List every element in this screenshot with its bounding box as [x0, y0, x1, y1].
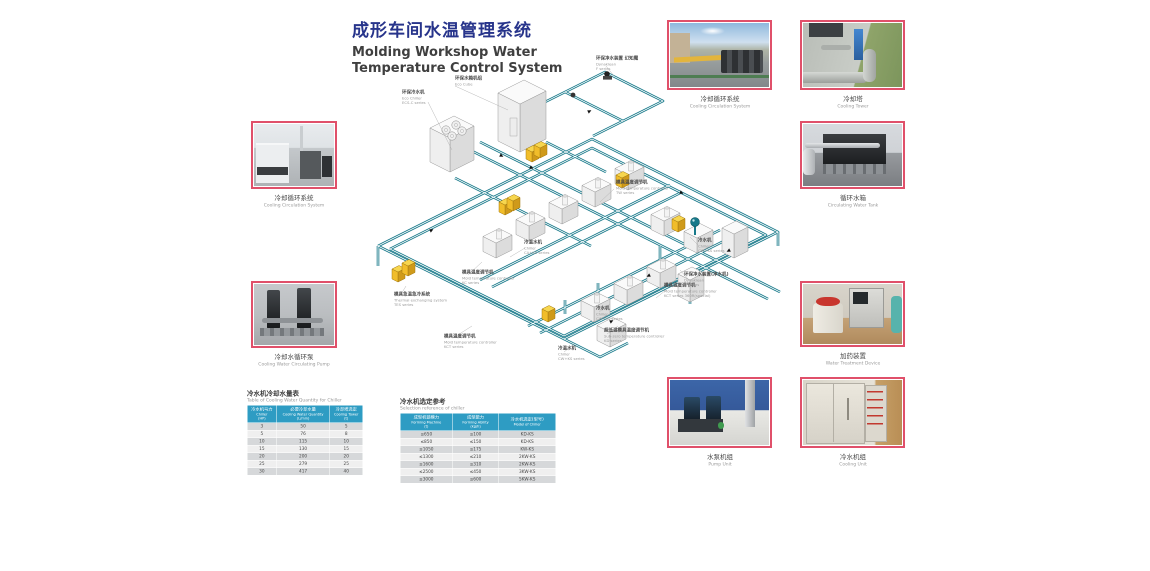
- diagram-label-chiller-cw-center: 冷水机 Chiller CW+KS series: [596, 306, 671, 322]
- table-row: ≤1300≤2102KW-KS: [400, 453, 556, 461]
- photo-image: [803, 284, 902, 344]
- photo-detail: [813, 303, 843, 333]
- photo-cooling-unit: 冷水机组 Cooling Unit: [800, 377, 905, 482]
- diagram-label-chiller-cw-right: 冷水机 Chiller CW+KS series: [698, 238, 773, 254]
- diagram-label-dynaklean-d: 环保净水装置(净水机) Dynaklean D series: [684, 272, 759, 288]
- diagram-label-controller-kct: 模具温度调节机 Mold temperature controller KCT …: [444, 334, 519, 350]
- photo-detail: [823, 134, 886, 164]
- photo-detail: [678, 419, 724, 432]
- table-row: 3505: [247, 423, 363, 431]
- photo-detail: [300, 126, 302, 151]
- photo-detail: [300, 151, 321, 178]
- photo-circulating-water-tank: 循环水箱 Circulating Water Tank: [800, 121, 905, 223]
- table-row: 2020020: [247, 453, 363, 461]
- diagram-label-eco-cube: 环保水箱机组 Eco Cube: [455, 76, 530, 87]
- photo-frame: [800, 377, 905, 448]
- table-row: ≤650≤100KD-KS: [400, 431, 556, 439]
- photo-detail: [260, 328, 324, 337]
- photo-detail: [262, 318, 323, 323]
- photo-detail: [257, 167, 287, 174]
- photo-detail: [803, 72, 868, 84]
- photo-detail: [847, 398, 849, 420]
- table-row: 3041740: [247, 468, 363, 476]
- table-col-header: 成型机锁模力Forming Machine(t): [400, 413, 452, 431]
- photo-image: [803, 23, 902, 87]
- cooling-water-table: 冷水机马力Chiller(HP)必要冷却水量Cooling Water Quan…: [247, 405, 363, 476]
- photo-image: [254, 284, 334, 345]
- photo-cooling-tower: 冷却塔 Cooling Tower: [800, 20, 905, 124]
- photo-detail: [821, 45, 851, 50]
- photo-image: [254, 124, 334, 186]
- photo-detail: [805, 143, 880, 149]
- photo-caption: 循环水箱 Circulating Water Tank: [800, 194, 905, 209]
- photo-frame: [800, 20, 905, 90]
- table-row: ≤2500≤4503KW-KS: [400, 468, 556, 476]
- photo-detail: [816, 297, 840, 305]
- photo-frame: [251, 281, 337, 348]
- photo-image: [803, 124, 902, 186]
- diagram-label-chiller-ca: 冷温水机 Chiller CA+KS series: [524, 240, 599, 256]
- photo-frame: [800, 121, 905, 189]
- table-col-header: 必要冷却水量Cooling Water Quantity(L/min): [276, 405, 329, 423]
- photo-detail: [256, 143, 290, 183]
- table1-title-en: Table of Cooling Water Quantity for Chil…: [247, 398, 363, 403]
- chiller-selection-table: 成型机锁模力Forming Machine(t)成型能力Forming Abil…: [400, 413, 556, 484]
- table-row: ≤850≤150KD-KS: [400, 438, 556, 446]
- table-row: ≤1050≤175KW-KS: [400, 446, 556, 454]
- photo-caption: 冷水机组 Cooling Unit: [800, 453, 905, 468]
- table-row: ≤1600≤3102KW-KS: [400, 461, 556, 469]
- table2-title-en: Selection reference of chiller: [400, 406, 556, 411]
- photo-caption: 加药装置 Water Treatment Device: [800, 352, 905, 367]
- photo-caption: 冷却水循环泵 Cooling Water Circulating Pump: [251, 353, 337, 368]
- table1-title-zh: 冷水机冷却水量表: [247, 388, 363, 398]
- photo-caption: 冷却循环系统 Cooling Circulation System: [251, 194, 337, 209]
- diagram-label-controller-kc: 模具温度调节机 Mold temperature controller KC s…: [462, 270, 537, 286]
- photo-detail: [823, 164, 886, 174]
- photo-caption: 水泵机组 Pump Unit: [667, 453, 772, 468]
- table-row: 1011510: [247, 438, 363, 446]
- photo-detail: [806, 383, 865, 444]
- photo-detail: [809, 23, 843, 37]
- photo-detail: [854, 29, 863, 60]
- diagram-label-chiller-cw-bottom: 冷温水机 Chiller CW+KS series: [558, 346, 633, 362]
- photo-detail: [867, 388, 883, 428]
- table-col-header: 冷水机马力Chiller(HP): [247, 405, 276, 423]
- photo-detail: [853, 292, 868, 304]
- photo-detail: [891, 296, 902, 333]
- photo-circulating-pump: 冷却水循环泵 Cooling Water Circulating Pump: [251, 281, 337, 382]
- photo-image: [803, 380, 902, 445]
- chiller-selection-table-block: 冷水机选定参考 Selection reference of chiller 成…: [400, 396, 558, 571]
- photo-detail: [718, 422, 725, 429]
- diagram-label-controller-kd: 超低温模具温度调节机 Sub-zero temperature controll…: [604, 328, 679, 344]
- photo-detail: [322, 156, 332, 177]
- photo-water-treatment-device: 加药装置 Water Treatment Device: [800, 281, 905, 381]
- diagram-label-dynaklean-f: 环保净水装置 幻知魔 Dynaklean F series: [596, 56, 671, 72]
- diagram-label-tes: 模具急温急冷系统 Thermal exchanging system TES s…: [394, 292, 469, 308]
- photo-frame: [251, 121, 337, 189]
- photo-caption: 冷却塔 Cooling Tower: [800, 95, 905, 110]
- diagram-label-eco-chiller: 环保冷水机 Eco Chiller ECS-C series: [402, 90, 477, 106]
- photo-detail: [700, 27, 726, 35]
- table-col-header: 成型能力Forming Ability(kg/h): [452, 413, 498, 431]
- photo-detail: [833, 383, 835, 442]
- diagram-label-controller-tw: 模具温度调节机 Mold temperature controller TW s…: [616, 180, 691, 196]
- photo-pump-unit: 水泵机组 Pump Unit: [667, 377, 772, 482]
- table-col-header: 冷水机选定(型号)Model of Chiller: [499, 413, 556, 431]
- page-title-zh: 成形车间水温管理系统: [352, 16, 612, 41]
- photo-frame: [800, 281, 905, 347]
- table-row: 5768: [247, 430, 363, 438]
- photo-detail: [803, 149, 815, 175]
- table2-title-zh: 冷水机选定参考: [400, 396, 556, 406]
- photo-detail: [863, 49, 876, 82]
- table-row: 2527925: [247, 460, 363, 468]
- cooling-water-table-block: 冷水机冷却水量表 Table of Cooling Water Quantity…: [247, 388, 365, 563]
- photo-detail: [267, 290, 281, 329]
- photo-cooling-circulation-left: 冷却循环系统 Cooling Circulation System: [251, 121, 337, 223]
- table-row: 1513015: [247, 445, 363, 453]
- table-col-header: 冷却塔选定Cooling Tower(t): [330, 405, 363, 423]
